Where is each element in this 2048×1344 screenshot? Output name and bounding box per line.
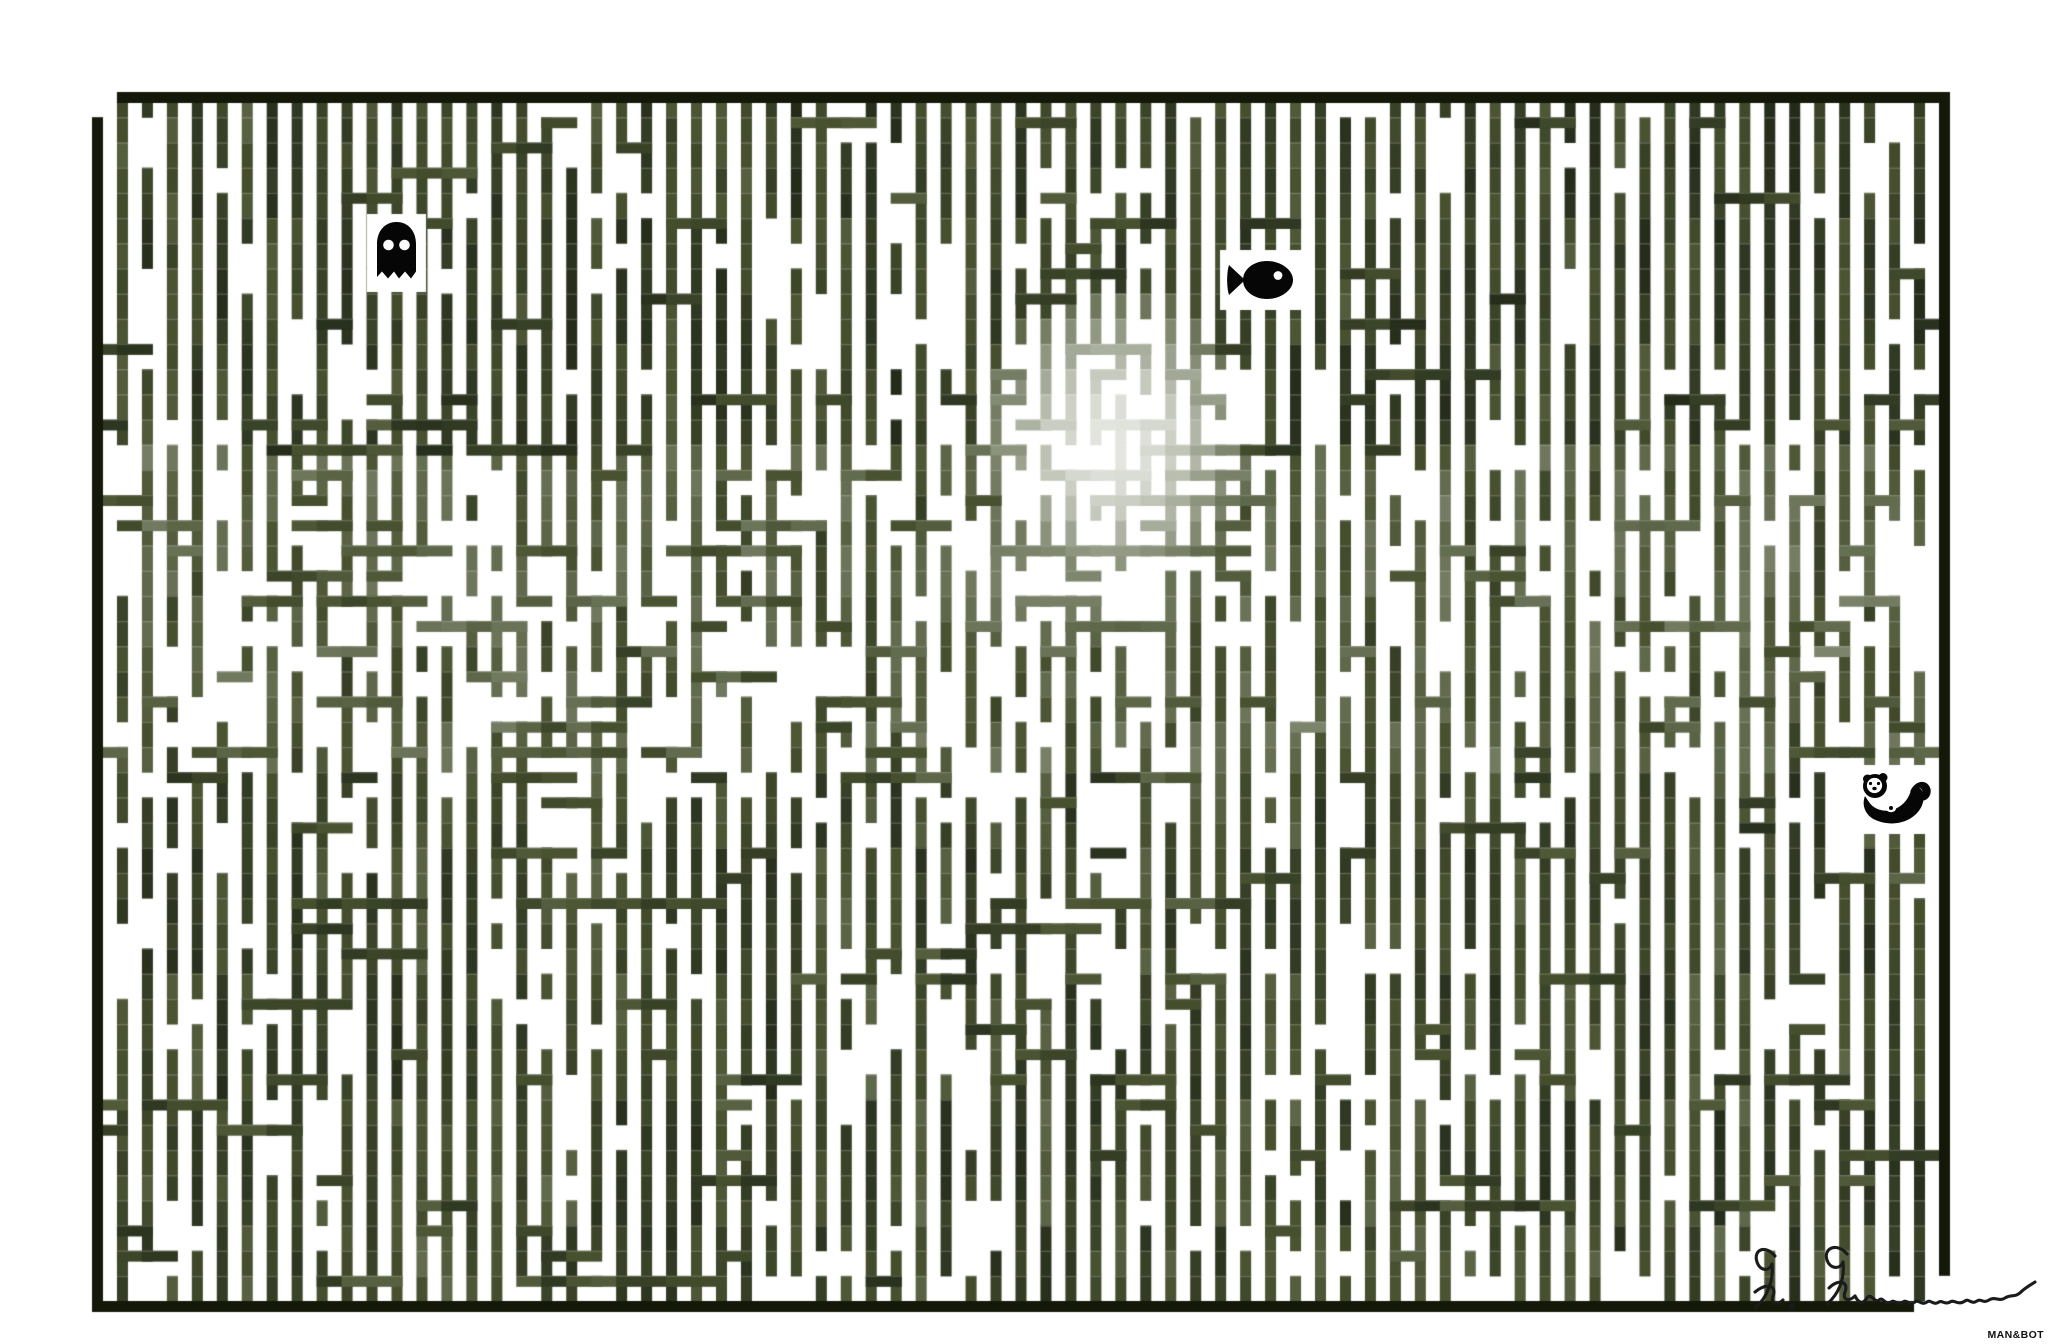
artist-signature <box>1745 1242 2045 1342</box>
maze-canvas <box>0 0 2048 1344</box>
fish-eye <box>1274 271 1283 280</box>
ghost-eye-left <box>383 240 394 251</box>
maze-artwork: MAN&BOT <box>0 0 2048 1344</box>
ghost-eye-right <box>399 240 410 251</box>
watermark-text: MAN&BOT <box>1988 1329 2044 1341</box>
otter-icon <box>1860 772 1932 827</box>
ghost-icon <box>374 221 419 285</box>
fish-icon <box>1227 257 1295 303</box>
